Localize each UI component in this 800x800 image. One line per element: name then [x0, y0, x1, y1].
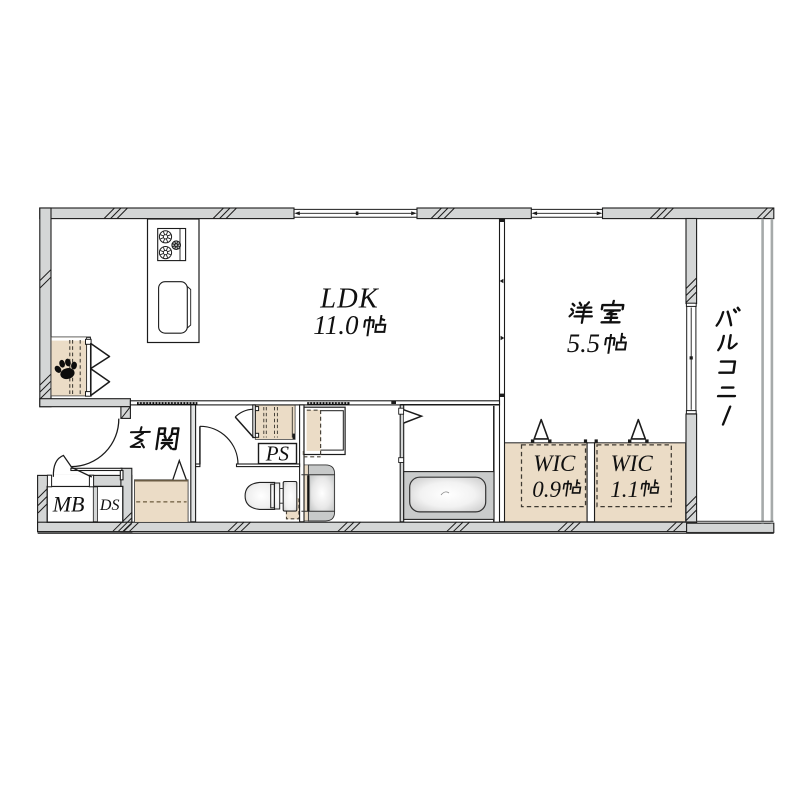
svg-text:5.5: 5.5 — [567, 328, 600, 358]
svg-text:PS: PS — [265, 442, 290, 466]
svg-text:WIC: WIC — [533, 451, 576, 476]
svg-text:DS: DS — [99, 497, 120, 514]
svg-text:11.0: 11.0 — [313, 310, 359, 340]
svg-text:0.9: 0.9 — [532, 477, 561, 502]
svg-text:MB: MB — [52, 492, 85, 517]
svg-text:WIC: WIC — [611, 451, 654, 476]
svg-text:1.1: 1.1 — [610, 477, 639, 502]
